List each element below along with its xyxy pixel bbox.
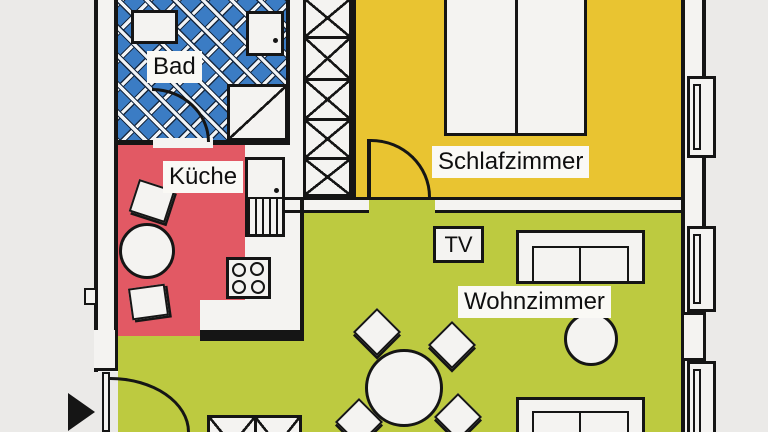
- stove: [226, 257, 271, 299]
- ventilation-shaft: [303, 0, 352, 197]
- sideboard-cell: [256, 418, 299, 432]
- cabinet-handle: [273, 38, 278, 43]
- wall-counter-right: [300, 197, 304, 341]
- wall-right-inner-line: [681, 0, 685, 432]
- sink-drainboard: [248, 197, 282, 234]
- shaft-cell: [306, 118, 349, 157]
- tv-label: TV: [444, 232, 472, 258]
- kitchen-sink-unit: [245, 157, 285, 237]
- wall-pier: [681, 312, 706, 361]
- window-bedroom: [687, 76, 716, 158]
- window-glass: [693, 234, 701, 304]
- sofa-bottom: [516, 397, 645, 432]
- room-label-kitchen: Küche: [163, 161, 243, 193]
- sofa-divider: [579, 411, 581, 432]
- window-glass: [693, 369, 701, 432]
- stove-burner: [250, 262, 264, 276]
- shaft-cell: [306, 36, 349, 78]
- floor-plan: TV Bad Küche Schlafzimmer Wohnzimmer: [0, 0, 768, 432]
- bed-divider: [515, 0, 518, 133]
- stove-burner: [251, 280, 265, 294]
- shaft-cell: [306, 157, 349, 194]
- wall-kitchen-living: [200, 330, 304, 341]
- coffee-table: [564, 312, 618, 366]
- entrance-arrow-icon: [68, 393, 95, 431]
- window-living-lower: [687, 361, 716, 432]
- bathroom-cabinet: [246, 11, 284, 56]
- bedroom-doorway: [369, 200, 435, 213]
- wall-left-inner-line: [114, 0, 118, 334]
- wall-entrance-stub: [94, 330, 118, 371]
- sink-drain: [274, 188, 279, 193]
- sideboard-divider: [254, 418, 257, 432]
- washbasin: [131, 10, 178, 44]
- room-label-bathroom: Bad: [147, 51, 202, 83]
- shaft-cell: [306, 78, 349, 118]
- kitchen-table: [119, 223, 175, 279]
- window-living-upper: [687, 226, 716, 312]
- kitchen-chair: [128, 284, 169, 321]
- double-bed: [444, 0, 587, 136]
- wall-bedroom-left-line: [352, 0, 356, 197]
- room-label-living-room: Wohnzimmer: [458, 286, 611, 318]
- stove-burner: [232, 280, 246, 294]
- wall-left-pilaster: [84, 288, 97, 305]
- window-glass: [693, 84, 701, 150]
- stove-burner: [232, 263, 246, 277]
- room-label-bedroom: Schlafzimmer: [432, 146, 589, 178]
- sideboard: [207, 415, 302, 432]
- shower: [227, 84, 288, 141]
- entrance-door-leaf: [102, 372, 110, 432]
- wall-bedroom-living: [284, 197, 685, 213]
- sofa-divider: [579, 246, 581, 281]
- tv-box: TV: [433, 226, 484, 263]
- sideboard-cell: [210, 418, 254, 432]
- sofa-top: [516, 230, 645, 284]
- shaft-cell: [306, 0, 349, 36]
- wall-left-outer-line: [94, 0, 98, 372]
